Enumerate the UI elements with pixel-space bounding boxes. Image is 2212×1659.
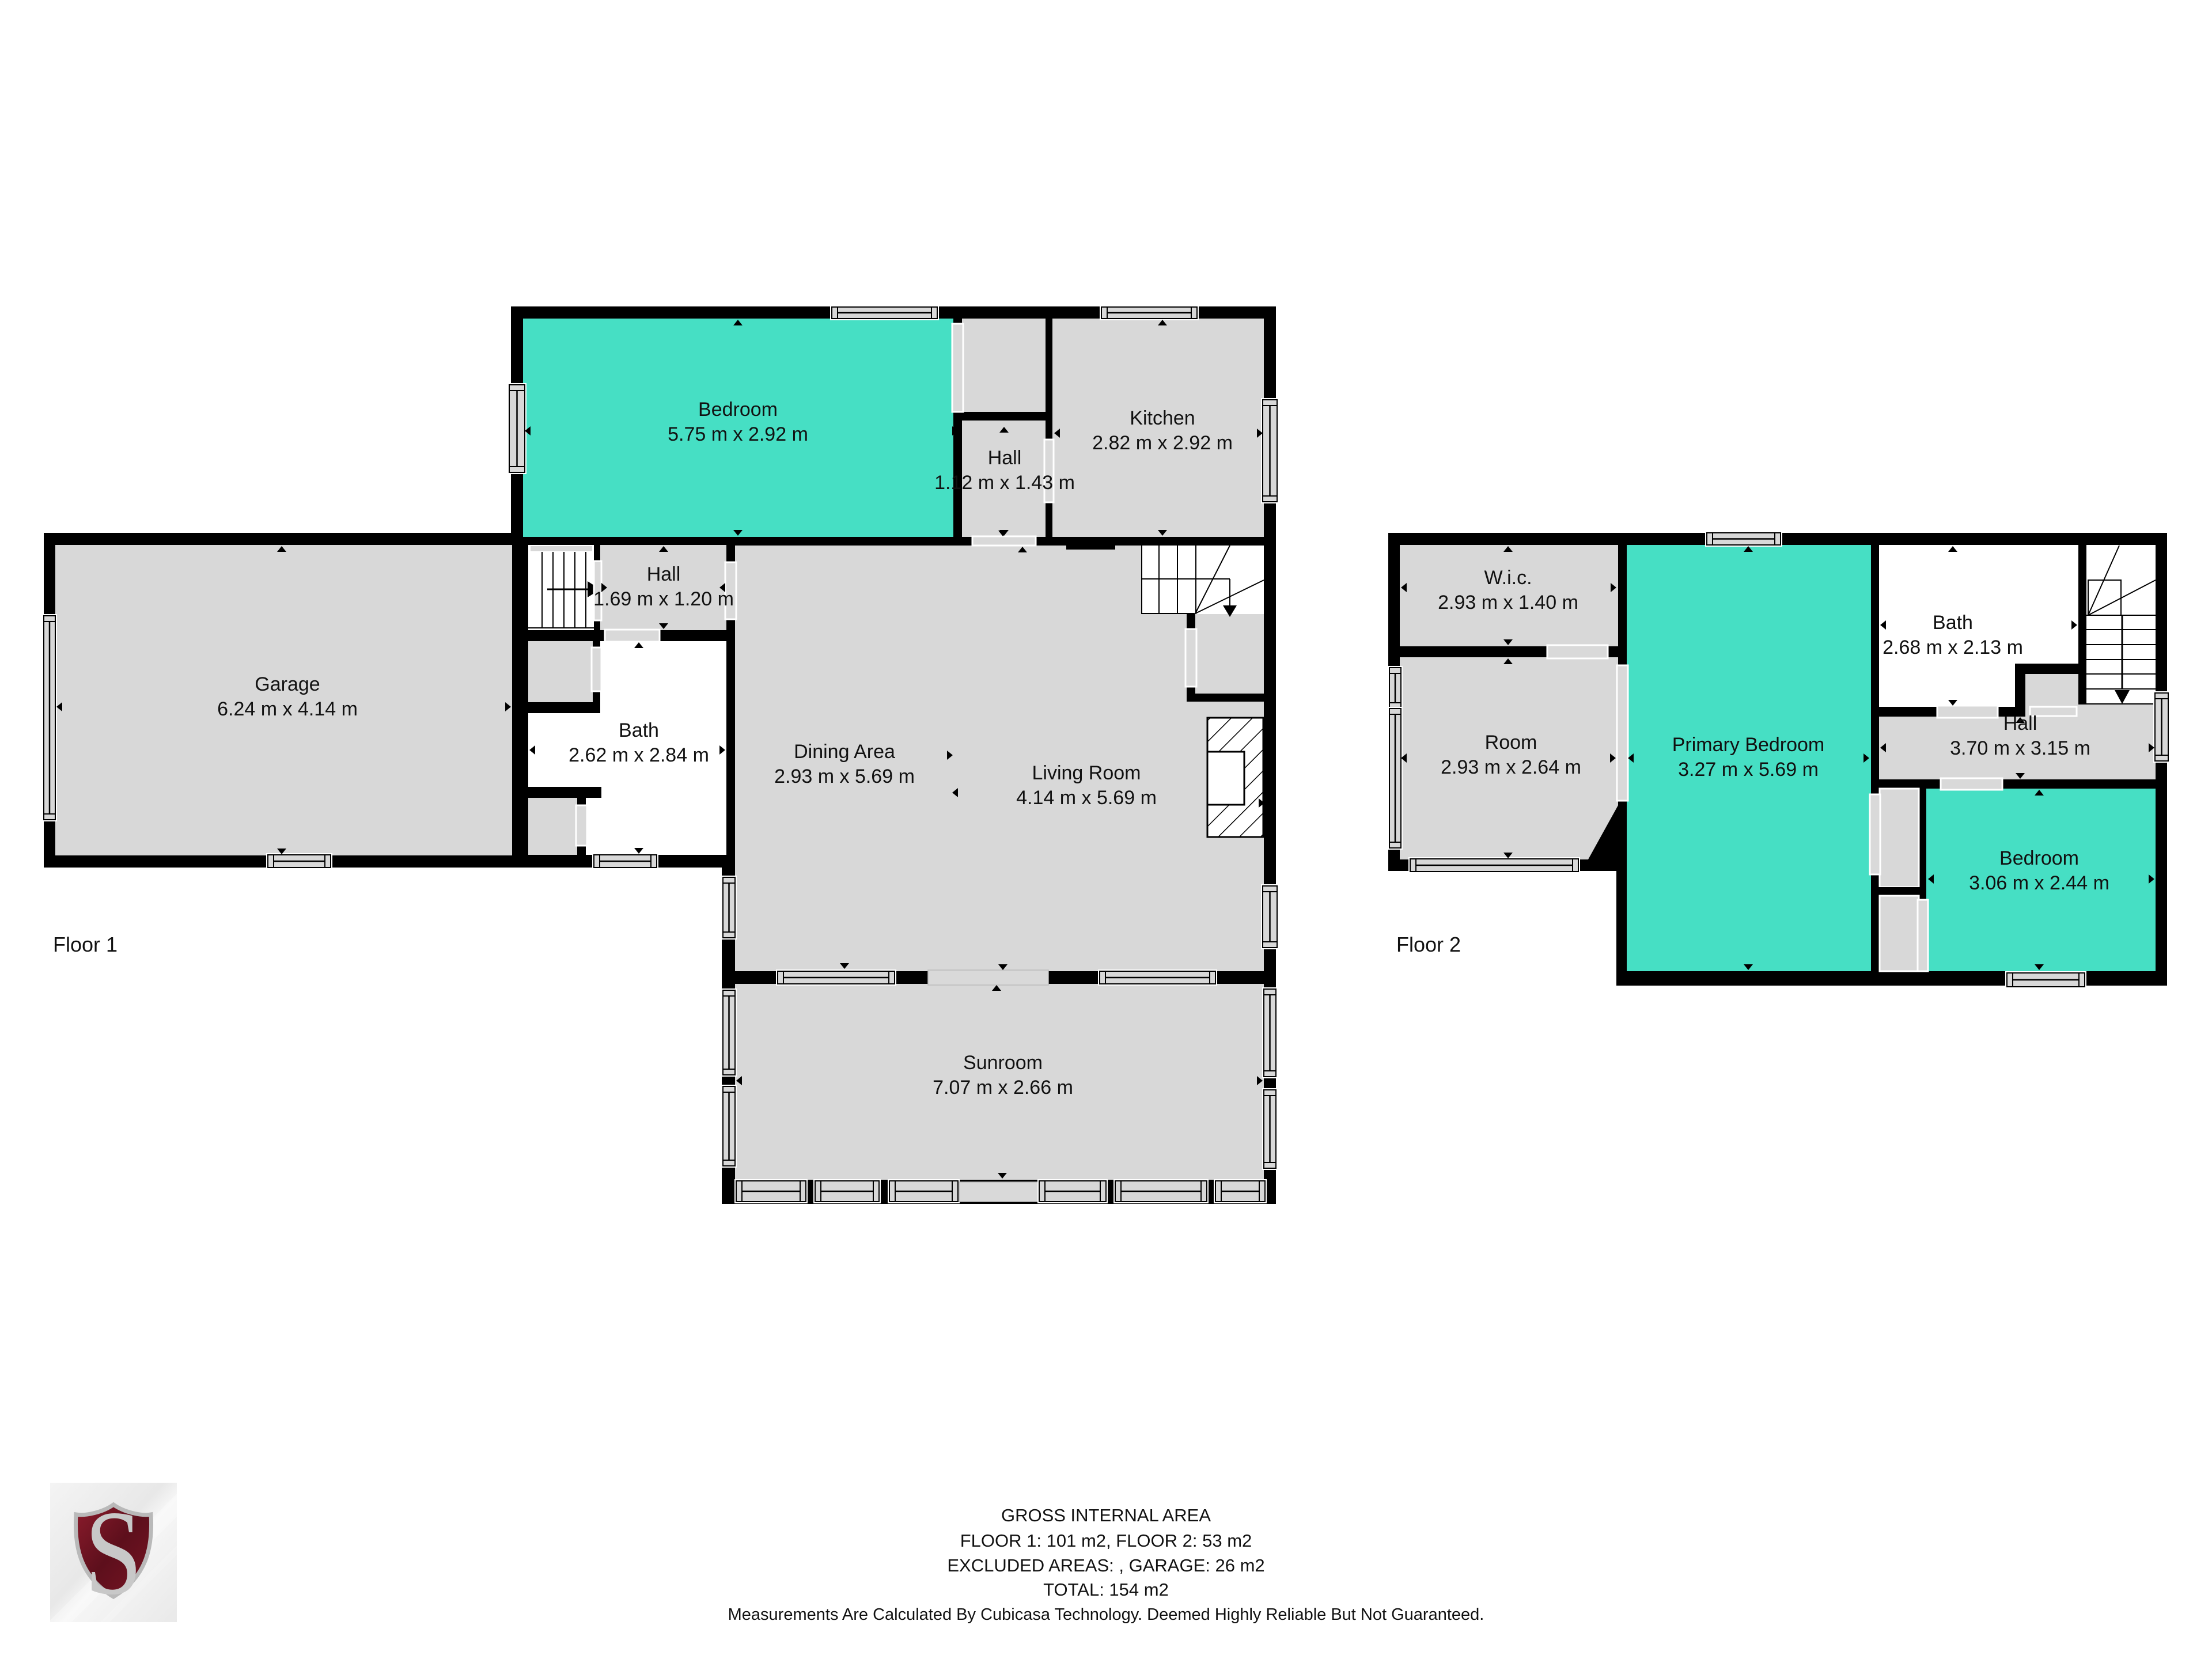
svg-text:5.75 m x 2.92 m: 5.75 m x 2.92 m [668, 423, 808, 445]
svg-text:Floor 2: Floor 2 [1396, 933, 1461, 956]
svg-text:1.12 m x 1.43 m: 1.12 m x 1.43 m [934, 472, 1075, 494]
svg-text:Bath: Bath [1933, 612, 1973, 634]
svg-text:2.93 m x 5.69 m: 2.93 m x 5.69 m [774, 766, 915, 787]
svg-text:GROSS INTERNAL AREA: GROSS INTERNAL AREA [1001, 1505, 1211, 1525]
svg-text:Floor 1: Floor 1 [53, 933, 118, 956]
svg-text:Bath: Bath [619, 719, 659, 741]
svg-text:Measurements Are Calculated By: Measurements Are Calculated By Cubicasa … [728, 1605, 1484, 1624]
svg-text:1.69 m x 1.20 m: 1.69 m x 1.20 m [593, 588, 734, 610]
svg-text:TOTAL: 154 m2: TOTAL: 154 m2 [1043, 1580, 1169, 1600]
svg-text:Sunroom: Sunroom [963, 1052, 1043, 1074]
svg-text:3.06 m x 2.44 m: 3.06 m x 2.44 m [1969, 872, 2109, 894]
svg-text:Garage: Garage [255, 673, 320, 695]
svg-text:Hall: Hall [2003, 713, 2037, 734]
svg-text:Bedroom: Bedroom [698, 399, 778, 421]
svg-text:Room: Room [1485, 732, 1537, 753]
svg-text:4.14 m x 5.69 m: 4.14 m x 5.69 m [1016, 787, 1157, 809]
svg-text:S: S [85, 1486, 142, 1620]
svg-text:Hall: Hall [988, 447, 1022, 469]
svg-text:W.i.c.: W.i.c. [1484, 567, 1532, 589]
svg-text:FLOOR 1: 101 m2, FLOOR 2: 53 m: FLOOR 1: 101 m2, FLOOR 2: 53 m2 [960, 1531, 1252, 1551]
svg-text:Living Room: Living Room [1032, 762, 1141, 784]
svg-text:Bedroom: Bedroom [1999, 847, 2079, 869]
svg-text:6.24 m x 4.14 m: 6.24 m x 4.14 m [217, 698, 358, 720]
svg-text:2.93 m x 2.64 m: 2.93 m x 2.64 m [1441, 756, 1581, 778]
svg-text:3.70 m x 3.15 m: 3.70 m x 3.15 m [1950, 737, 2090, 759]
svg-text:Kitchen: Kitchen [1130, 407, 1195, 429]
svg-text:2.93 m x 1.40 m: 2.93 m x 1.40 m [1438, 592, 1578, 613]
svg-text:3.27 m x 5.69 m: 3.27 m x 5.69 m [1678, 759, 1819, 781]
svg-text:EXCLUDED AREAS: , GARAGE: 26 m: EXCLUDED AREAS: , GARAGE: 26 m2 [947, 1555, 1264, 1575]
svg-text:2.62 m x 2.84 m: 2.62 m x 2.84 m [569, 744, 709, 766]
svg-text:2.68 m x 2.13 m: 2.68 m x 2.13 m [1883, 637, 2023, 658]
svg-text:Primary Bedroom: Primary Bedroom [1672, 734, 1825, 756]
svg-text:Dining Area: Dining Area [794, 741, 895, 763]
svg-text:Hall: Hall [647, 563, 681, 585]
svg-text:7.07 m x 2.66 m: 7.07 m x 2.66 m [933, 1077, 1073, 1099]
svg-text:2.82 m x 2.92 m: 2.82 m x 2.92 m [1092, 432, 1233, 454]
